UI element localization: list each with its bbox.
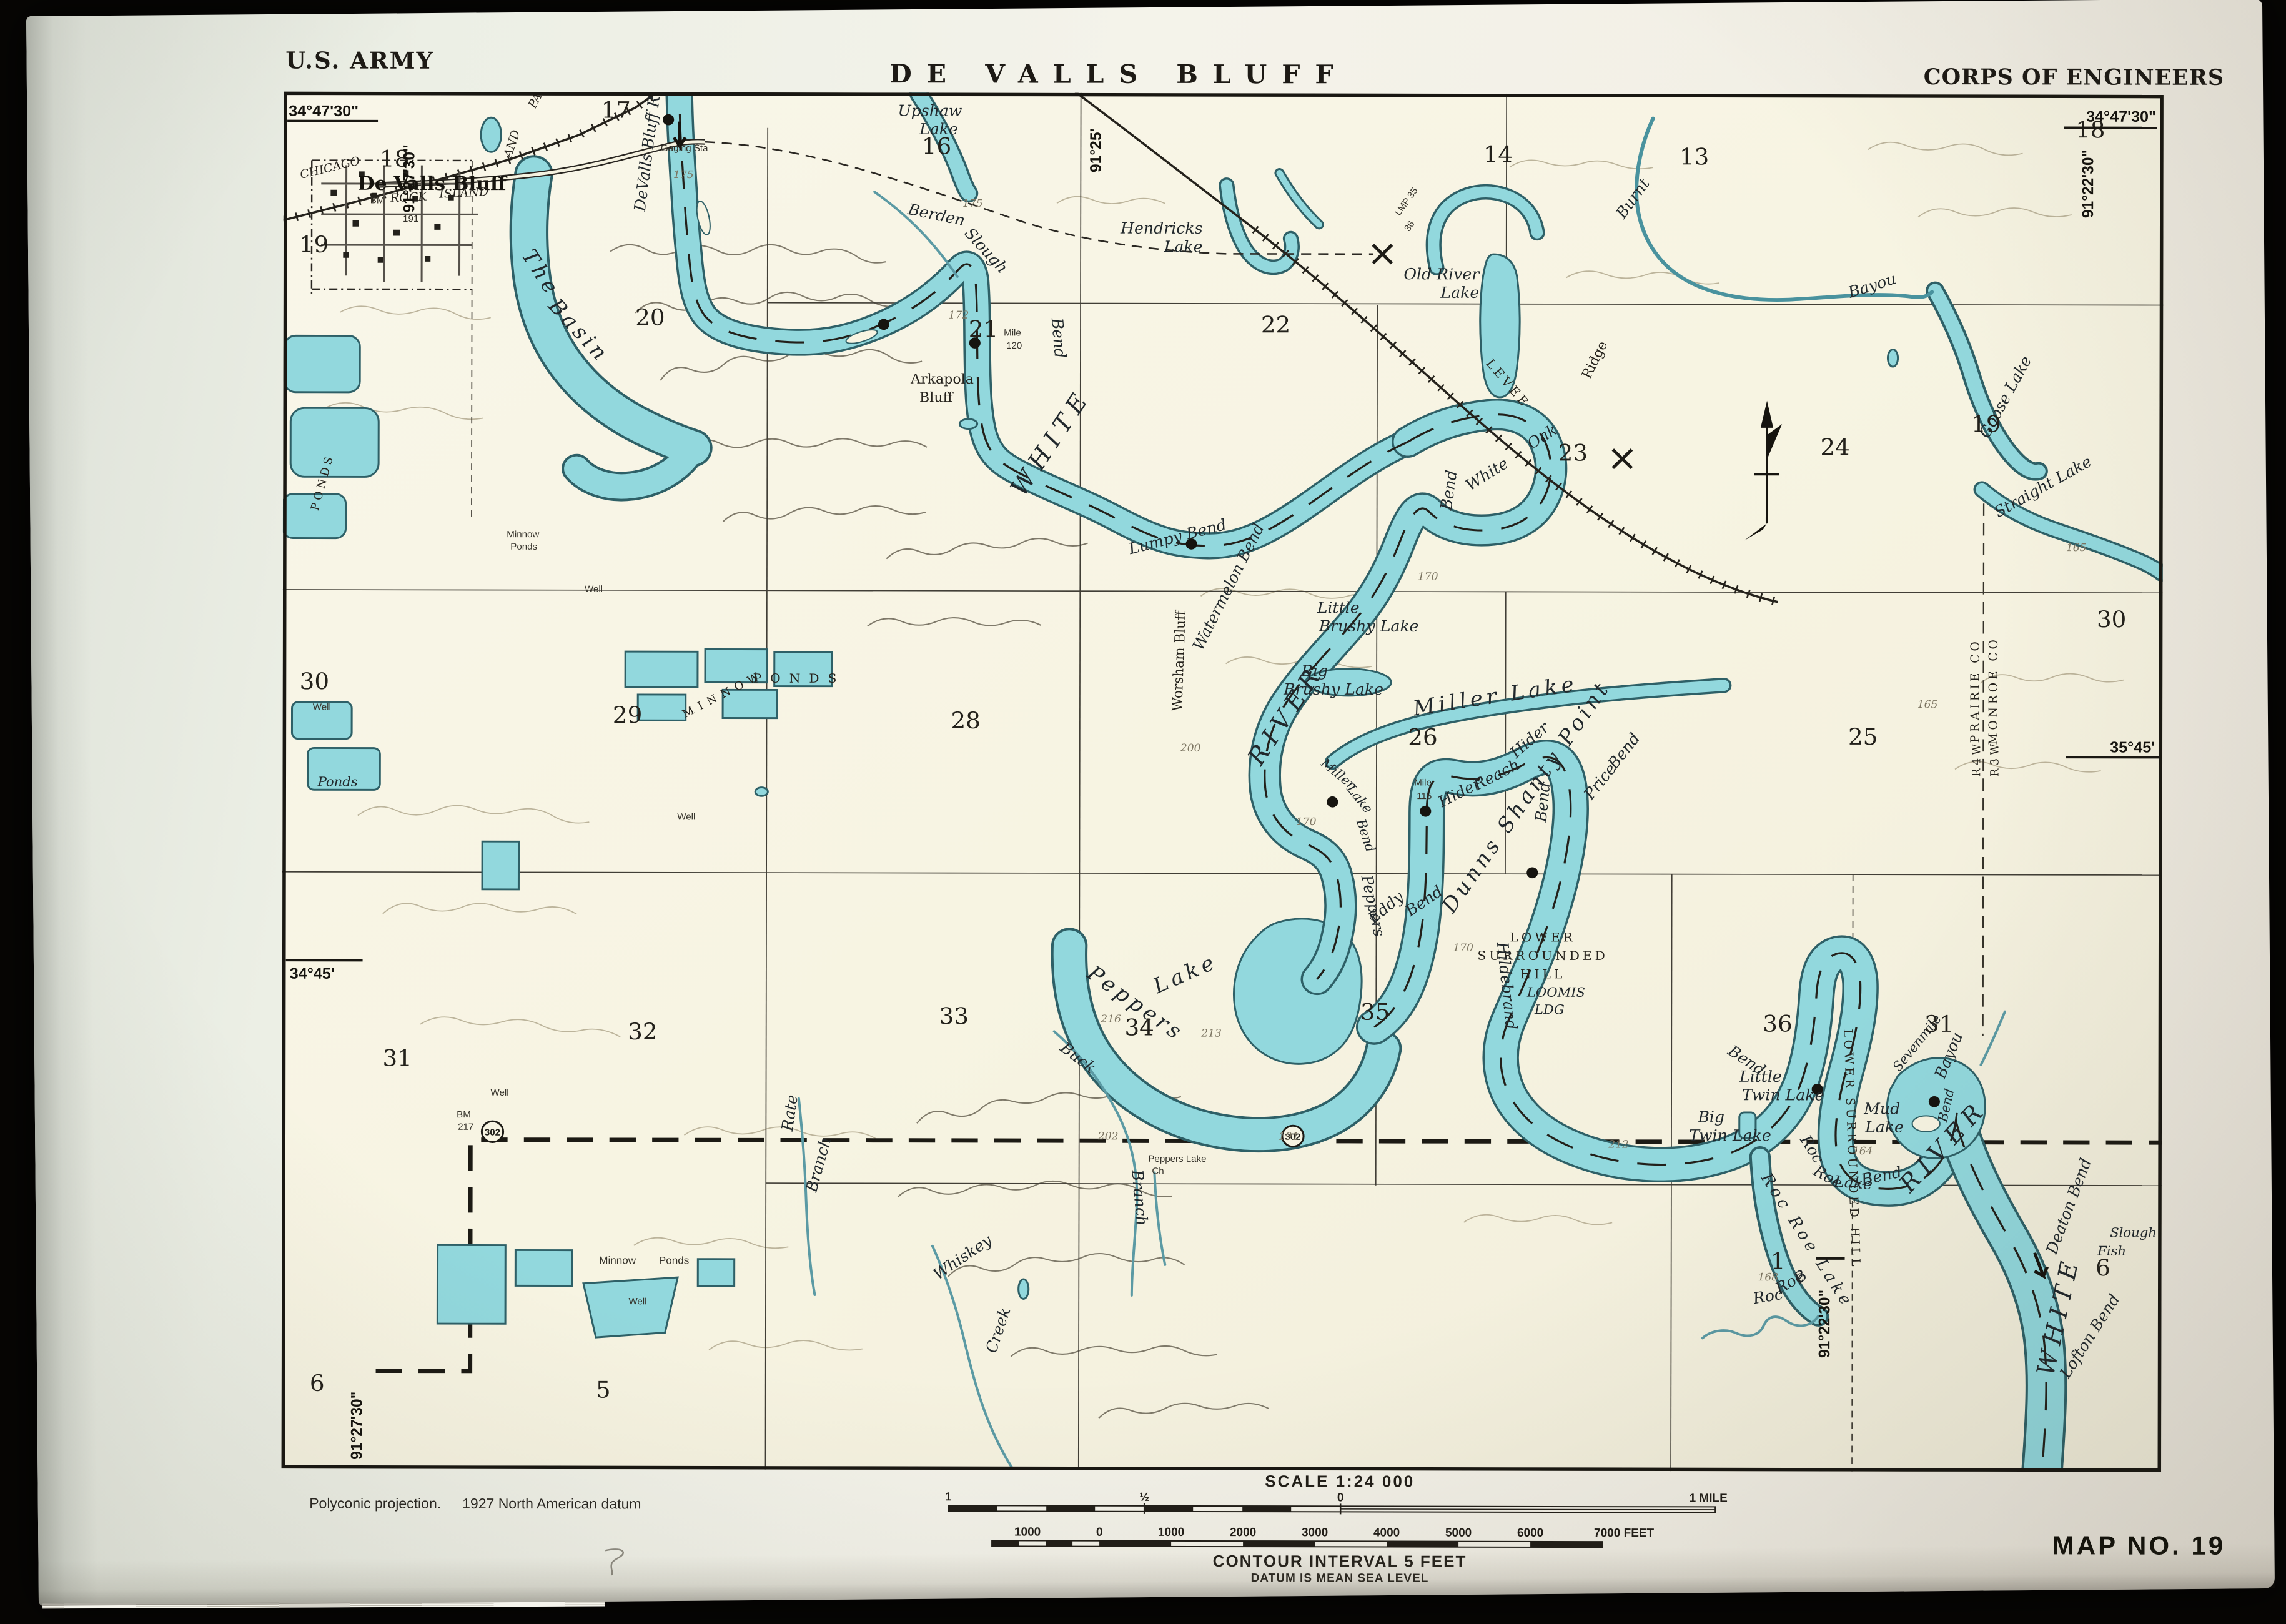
label-hendricks: Hendricks <box>1120 219 1203 237</box>
feet-scale-bar: 1000 0 1000 2000 3000 4000 5000 6000 700… <box>981 1525 1699 1559</box>
contour-213: 213 <box>1200 1027 1222 1039</box>
section-19-east: 19 <box>1971 411 2001 438</box>
coord-lon-2230-top: 91°22'30" <box>2079 150 2097 218</box>
contour-175-b: 175 <box>673 168 694 181</box>
section-19-west: 19 <box>299 231 329 258</box>
section-21: 21 <box>969 316 998 343</box>
scale-block: SCALE 1:24 000 1 ½ 0 1 MILE 1000 0 10 <box>924 1471 1755 1562</box>
mile-tick-1: 1 <box>945 1490 952 1503</box>
feet-tick-7: 6000 <box>1517 1527 1543 1540</box>
mile-tick-1mile: 1 MILE <box>1690 1492 1728 1505</box>
contour-170-a: 170 <box>1418 570 1438 583</box>
label-berden-bend: Bend <box>1048 317 1070 359</box>
label-r3w: R3W <box>1988 741 2001 776</box>
label-well-5: Well <box>628 1297 646 1307</box>
feet-tick-8: 7000 FEET <box>1594 1527 1655 1540</box>
contour-172: 172 <box>949 309 969 321</box>
section-6-east: 6 <box>2095 1255 2110 1282</box>
label-prairie-co: PRAIRIE CO <box>1968 638 1982 743</box>
route-302-label-west: 302 <box>485 1128 500 1138</box>
contour-170-c: 170 <box>1453 941 1473 954</box>
label-bm: BM <box>370 196 385 206</box>
coord-lon-2230-bottom: 91°22'30" <box>1816 1290 1834 1358</box>
contour-164: 164 <box>1853 1144 1873 1157</box>
label-mile-120-word: Mile <box>1004 329 1021 339</box>
label-big-twin: Big <box>1697 1108 1724 1126</box>
coord-w-lat: 34°45' <box>290 965 335 983</box>
section-30-east: 30 <box>2097 606 2126 633</box>
label-big-brushy: Big <box>1300 662 1328 680</box>
feet-tick-4: 3000 <box>1302 1526 1328 1539</box>
map-number: MAP NO. 19 <box>2052 1530 2225 1560</box>
coord-lon-2730-top: 91°27'30" <box>400 144 418 212</box>
label-gaging-sta: Gaging Sta <box>661 144 708 154</box>
projection-note: Polyconic projection.1927 North American… <box>309 1495 662 1512</box>
map-title: DE VALLS BLUFF <box>889 59 1348 89</box>
contour-165-a: 165 <box>2066 541 2087 553</box>
agency-label-right: CORPS OF ENGINEERS <box>1924 64 2224 91</box>
label-minnow-bottom: Minnow <box>599 1254 636 1266</box>
handwritten-mark <box>598 1545 635 1577</box>
mile-tick-half: ½ <box>1139 1491 1149 1504</box>
label-arkapola: Arkapola <box>910 372 974 387</box>
label-peppers-lake-ch: Peppers Lake <box>1148 1154 1206 1164</box>
contour-202: 202 <box>1097 1130 1119 1142</box>
label-little-brushy-lake: Brushy Lake <box>1319 617 1419 635</box>
label-little-twin: Little <box>1739 1067 1782 1086</box>
contour-175-a: 175 <box>962 197 983 209</box>
atlas-page: U.S. ARMY DE VALLS BLUFF CORPS OF ENGINE… <box>26 0 2275 1606</box>
label-little-brushy: Little <box>1317 599 1360 617</box>
label-big-brushy-lake: Brushy Lake <box>1283 680 1383 698</box>
label-ponds-big: PONDS <box>753 671 845 686</box>
map-frame: 302 302 <box>281 91 2164 1472</box>
label-big-twin-lake: Twin Lake <box>1689 1126 1771 1144</box>
label-bm-217: 217 <box>458 1122 473 1132</box>
coord-lon-25-top: 91°25' <box>1087 129 1104 172</box>
label-well-3: Well <box>677 813 695 823</box>
label-mile-115-word: Mile <box>1414 778 1432 788</box>
label-hendricks-lake: Lake <box>1164 238 1203 256</box>
feet-tick-6: 5000 <box>1445 1527 1472 1540</box>
feet-tick-0: 1000 <box>1014 1525 1041 1538</box>
section-13: 13 <box>1680 144 1709 171</box>
label-spot-191: 191 <box>403 214 418 224</box>
section-30-west: 30 <box>300 668 329 695</box>
map-legend: Polyconic projection.1927 North American… <box>215 1470 2233 1583</box>
label-rr-island: ISLAND <box>438 185 489 201</box>
map-sheet: U.S. ARMY DE VALLS BLUFF CORPS OF ENGINE… <box>215 42 2235 1583</box>
label-mile-115-num: 115 <box>1417 791 1432 801</box>
contour-170-b: 170 <box>1296 815 1317 828</box>
section-33: 33 <box>939 1003 969 1030</box>
section-36: 36 <box>1763 1011 1792 1037</box>
section-6-west: 6 <box>310 1370 325 1397</box>
datum-note: DATUM IS MEAN SEA LEVEL <box>924 1571 1755 1586</box>
label-fish-slough: Slough <box>2110 1225 2157 1240</box>
coord-nw-lat: 34°47'30" <box>289 102 359 120</box>
contour-212: 212 <box>1608 1138 1629 1151</box>
label-upshaw: Upshaw <box>898 102 962 120</box>
section-16: 16 <box>922 133 951 160</box>
label-well-2: Well <box>313 703 331 713</box>
photographed-atlas-page: { "header": {"us_army":"U.S. ARMY","titl… <box>0 0 2286 1624</box>
label-well-1: Well <box>585 585 603 595</box>
mile-scale-bar: 1 ½ 0 1 MILE <box>924 1490 1755 1523</box>
agency-label-left: U.S. ARMY <box>285 46 434 74</box>
datum-source-text: 1927 North American datum <box>462 1495 641 1512</box>
section-34: 34 <box>1124 1014 1154 1041</box>
section-31-east: 31 <box>1924 1011 1954 1037</box>
contour-191: 191 <box>1279 1130 1299 1142</box>
section-22: 22 <box>1261 312 1290 339</box>
feet-tick-1: 0 <box>1096 1526 1103 1539</box>
section-5: 5 <box>596 1377 611 1404</box>
contour-200: 200 <box>1180 741 1201 754</box>
contour-168: 168 <box>1758 1270 1779 1283</box>
label-loomis: LOOMIS <box>1526 985 1585 1000</box>
section-28: 28 <box>951 707 980 734</box>
label-mile-120-num: 120 <box>1006 341 1022 351</box>
section-17: 17 <box>601 97 630 124</box>
label-ponds-w: Ponds <box>510 542 537 552</box>
label-bm-2: BM <box>457 1110 471 1120</box>
section-29: 29 <box>613 701 642 728</box>
label-old-river-lake: Lake <box>1440 284 1479 302</box>
label-r4w: R4W <box>1970 741 1983 776</box>
section-26: 26 <box>1408 724 1437 751</box>
label-mud-lake: Lake <box>1864 1118 1904 1136</box>
label-hill: HILL <box>1520 967 1565 981</box>
label-ldg: LDG <box>1534 1002 1565 1017</box>
section-24: 24 <box>1820 434 1849 461</box>
section-31-west: 31 <box>382 1045 412 1072</box>
projection-text: Polyconic projection. <box>309 1495 441 1511</box>
contour-216: 216 <box>1100 1013 1121 1025</box>
section-25: 25 <box>1848 723 1878 750</box>
contour-interval-note: CONTOUR INTERVAL 5 FEET <box>924 1551 1755 1572</box>
feet-tick-3: 2000 <box>1230 1526 1256 1539</box>
coord-lon-2730-bottom: 91°27'30" <box>348 1392 366 1460</box>
topo-map-svg: 302 302 <box>281 91 2164 1472</box>
stacked-page-edges <box>42 1601 605 1608</box>
label-peppers-lake-ch2: Ch <box>1152 1167 1164 1177</box>
feet-tick-5: 4000 <box>1373 1526 1400 1539</box>
mile-tick-0: 0 <box>1337 1491 1344 1504</box>
label-lower: LOWER <box>1510 930 1576 944</box>
label-minnow-w: Minnow <box>507 530 539 540</box>
label-ponds-small: Ponds <box>317 775 358 790</box>
section-14: 14 <box>1483 141 1513 168</box>
contour-165-b: 165 <box>1917 698 1938 710</box>
section-23: 23 <box>1558 440 1588 467</box>
label-mud: Mud <box>1863 1100 1900 1118</box>
label-old-river: Old River <box>1403 265 1480 283</box>
section-32: 32 <box>628 1018 657 1045</box>
label-little-twin-lake: Twin Lake <box>1742 1086 1824 1104</box>
label-monroe-co: MONROE CO <box>1986 636 2001 745</box>
label-ponds-bottom: Ponds <box>659 1255 690 1267</box>
coord-ne-lat: 34°47'30" <box>2086 108 2156 126</box>
section-35: 35 <box>1360 999 1390 1026</box>
section-20: 20 <box>635 304 665 331</box>
label-arkapola-bluff: Bluff <box>919 390 954 405</box>
scale-title: SCALE 1:24 000 <box>924 1471 1755 1492</box>
label-well-4: Well <box>491 1088 509 1098</box>
coord-e-lat: 35°45' <box>2110 739 2155 756</box>
feet-tick-2: 1000 <box>1158 1526 1184 1539</box>
